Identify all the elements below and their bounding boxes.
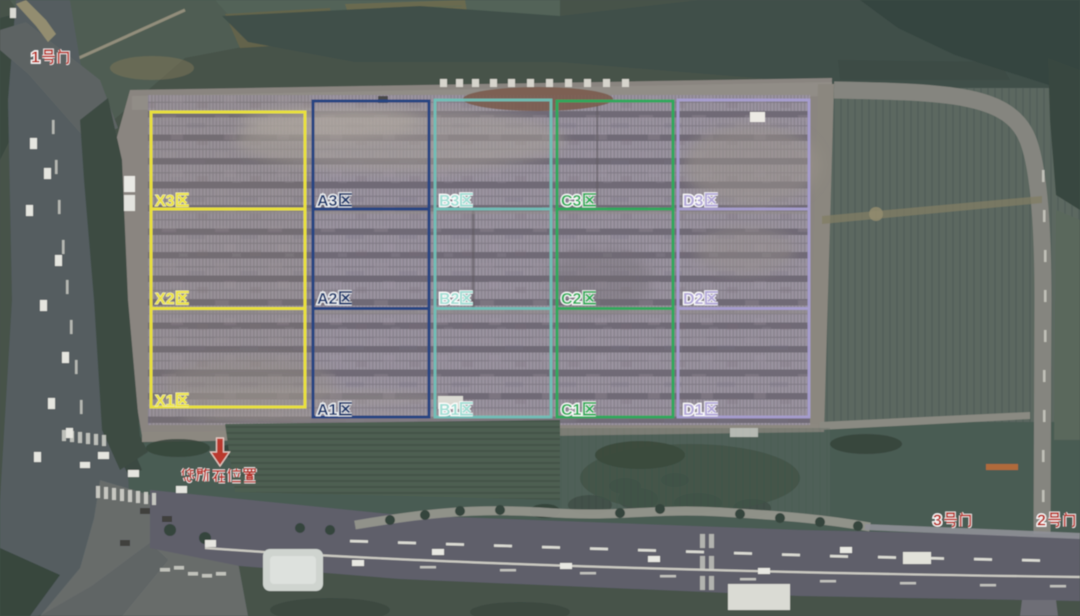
svg-text:D3: D3 [683,193,704,210]
svg-text:B1: B1 [439,402,460,419]
svg-text:D2: D2 [683,291,704,308]
svg-text:B3: B3 [439,193,460,210]
svg-text:C1: C1 [561,402,582,419]
svg-text:1: 1 [31,50,40,67]
svg-text:A2: A2 [317,291,338,308]
svg-text:A1: A1 [317,402,338,419]
svg-text:C3: C3 [561,193,582,210]
svg-text:B2: B2 [439,291,460,308]
svg-text:C2: C2 [561,291,582,308]
svg-text:3: 3 [933,513,942,530]
svg-text:X1: X1 [155,393,175,410]
svg-text:X3: X3 [155,193,175,210]
svg-text:D1: D1 [683,402,704,419]
svg-text:A3: A3 [317,193,338,210]
svg-text:X2: X2 [155,291,175,308]
svg-text:2: 2 [1037,513,1046,530]
